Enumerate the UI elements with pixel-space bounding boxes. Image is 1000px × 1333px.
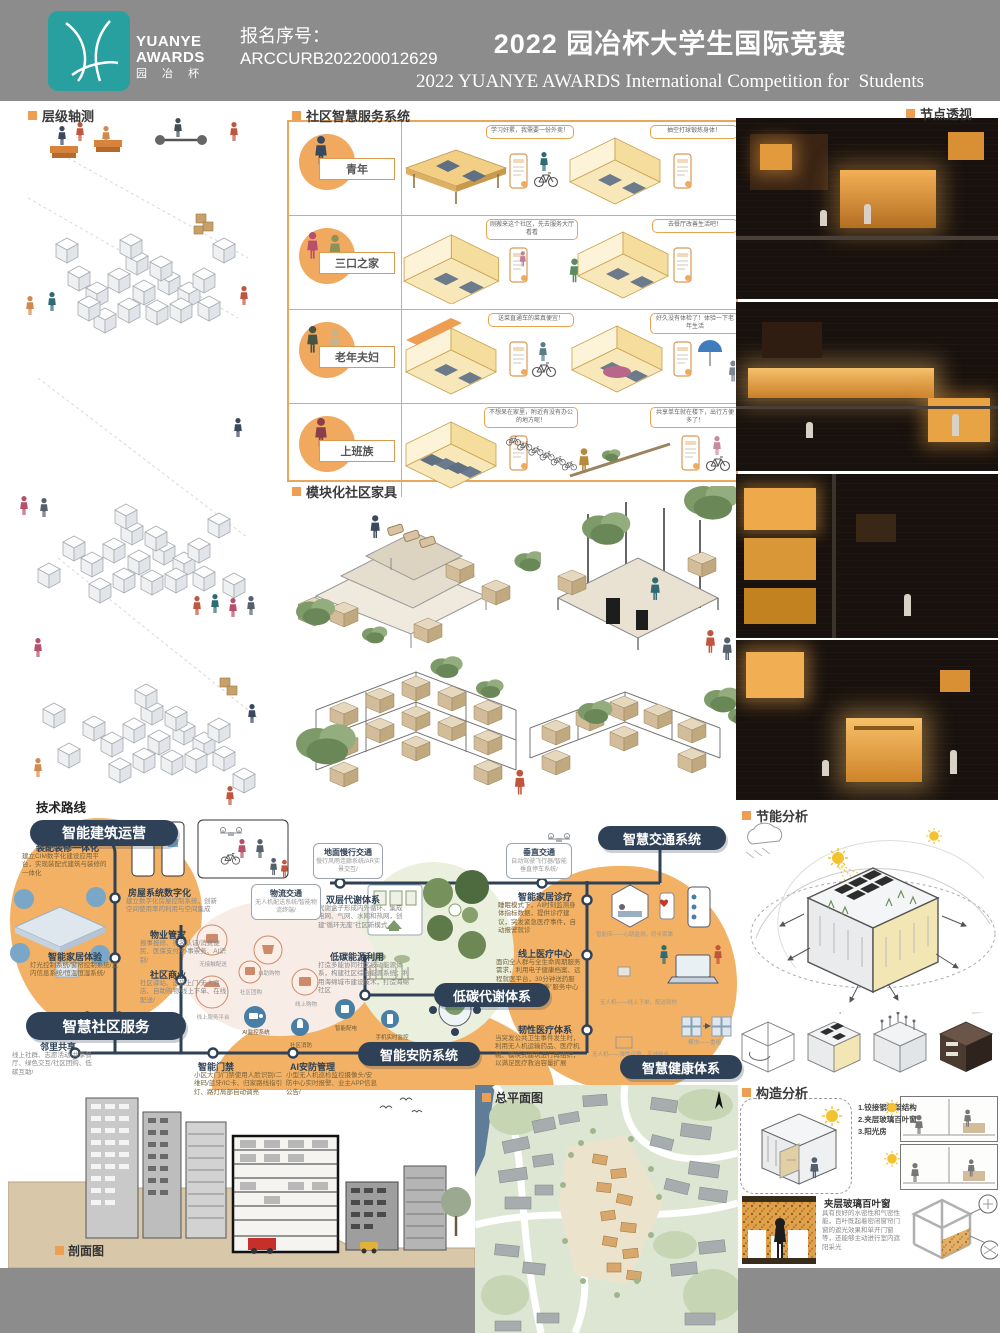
service-row-family-scenes: 刚搬来这个社区，先去服务大厅看看 去餐厅改善生活吧！	[402, 216, 736, 309]
axon-cluster-1	[56, 234, 235, 333]
tower-3	[186, 1122, 226, 1238]
logo-line1: YUANYE	[136, 34, 205, 50]
box-logistics-desc: 无人机配送系统/智能物流终端/	[254, 900, 318, 916]
security-caption-1: AI监控系统	[236, 1030, 276, 1037]
yellow-car	[360, 1242, 378, 1250]
caption-module-recombine: 模块——重组	[688, 1040, 734, 1047]
poster-title-cn: 2022 园冶杯大学生国际竞赛	[360, 22, 980, 61]
pill-smart-health: 智慧健康体系	[620, 1055, 742, 1079]
service-row-elderly-scenes: 送菜直通车的菜真便宜！ 好久没有体检了！体验一下老年生活	[402, 310, 736, 403]
pill-smart-security: 智能安防系统	[358, 1042, 480, 1066]
night-render-3	[736, 474, 998, 638]
frame-cube-detail	[908, 1192, 998, 1268]
speech-bubble: 刚搬来这个社区，先去服务大厅看看	[486, 219, 578, 240]
night-render-2	[736, 302, 998, 471]
umbrella	[698, 340, 722, 352]
service-row-workers-scenes: 不想呆在家里，附近有没有办公的地方呢！ 共享单车就在楼下，出行方便多了！	[402, 404, 736, 497]
node-desc-homemed: 睡眠模式下，AI时刻监测身体指标数据，提供诊疗建议，突发紧急医疗事件，自动报警就…	[498, 902, 582, 936]
speech-bubble: 抽空打球锻炼身体！	[650, 125, 738, 139]
node-view-section-title: 节点透视	[906, 104, 972, 123]
speaker	[636, 610, 648, 630]
speech-bubble: 去餐厅改善生活吧！	[652, 219, 738, 233]
mini-cube-frame	[742, 1022, 794, 1072]
master-plan-label: 总平面图	[482, 1089, 543, 1106]
sun-icon	[822, 1106, 842, 1126]
orange-square-icon	[906, 109, 915, 118]
node-desc-lowcarbon: 打造多能协同社区被动能源体系，构建社区综合能源系统；利用海绵城市建设技术，打造海…	[318, 962, 410, 996]
furniture-planter-rack-tall	[296, 650, 538, 802]
energy-title-text: 节能分析	[756, 806, 808, 825]
construction-section-title: 构造分析	[742, 1083, 808, 1102]
service-row-youth-head: 青年	[289, 122, 402, 215]
box-slow-desc: 慢行风雨连廊系统/AR实景交互/	[316, 859, 380, 875]
axon-cluster-2	[38, 504, 245, 603]
speech-bubble: 共享单车就在楼下，出行方便多了！	[650, 407, 740, 428]
tech-route-title: 技术路线	[36, 797, 86, 816]
caption-smart-bed: 智能床——心跳监测，同步家属	[596, 932, 676, 939]
bike-racks	[506, 437, 670, 476]
tower-2	[143, 1112, 181, 1238]
orange-square-icon	[292, 487, 301, 496]
sun-icon	[926, 828, 942, 844]
orange-square-icon	[55, 1246, 64, 1255]
box-slow-title: 地面慢行交通	[316, 847, 380, 858]
speech-bubble: 不想呆在家里，附近有没有办公的地方呢！	[484, 407, 578, 428]
planter-rows	[542, 696, 706, 775]
orange-square-icon	[742, 811, 751, 820]
orange-square-icon	[292, 111, 301, 120]
service-section-title: 社区智慧服务系统	[292, 106, 410, 125]
mini-cube-solar	[808, 1012, 860, 1072]
node-desc-door: 小区大门/门禁使用人脸识别/二维码/蓝牙/IC卡、归家路线指引灯、路灯局部自动调…	[194, 1072, 286, 1097]
persona-label: 上班族	[319, 440, 395, 462]
node-desc-aisec: 小型无人机巡检监控摄像头/安防中心实时报警、业主APP信息公告/	[286, 1072, 378, 1097]
persona-label: 青年	[319, 158, 395, 180]
service-row-family-head: 三口之家	[289, 216, 402, 309]
energy-diagram	[738, 816, 998, 1012]
node-desc-resilient: 当突发公共卫生事件发生时，利用无人机运输药品、医疗机械、模块式建筑进行再组织，以…	[495, 1035, 581, 1069]
service-row-youth-scenes: 学习好累，我需要一份外卖！ 抽空打球锻炼身体！	[402, 122, 736, 215]
tower-5	[404, 1166, 446, 1250]
pill-smart-building: 智能建筑运营	[30, 820, 178, 846]
barbell-illustration	[155, 135, 207, 145]
node-view-title-text: 节点透视	[920, 104, 972, 123]
furniture-grandstand	[296, 496, 541, 658]
construction-note-3: 3.阳光房	[858, 1126, 887, 1137]
node-desc-metabolism: 代谢盒子形成内外循环、集成电网、气网、水网和热网，创建“循环无废”社区新模式	[318, 905, 408, 930]
service-row-elderly-head: 老年夫妇	[289, 310, 402, 403]
node-desc-housing: 建立数字化房屋控制系统，创新空间使用率的利用与空间集成	[126, 898, 218, 915]
speech-bubble: 好久没有体检了！体验一下老年生活	[650, 313, 740, 334]
circle-caption-4: 社区团购	[230, 990, 272, 997]
season-sun-icons	[884, 1098, 900, 1194]
node-desc-assembly: 建立CIM数字化建设应用平台，实现装配式建筑与装修的一体化	[22, 853, 110, 878]
box-slow-traffic: 地面慢行交通慢行风雨连廊系统/AR实景交互/	[313, 843, 383, 879]
night-render-4	[736, 640, 998, 800]
furniture-section-title: 模块化社区家具	[292, 482, 397, 501]
winter-section-diagram	[900, 1144, 998, 1190]
furniture-stage	[540, 486, 738, 662]
mini-cube-dark	[940, 1012, 992, 1072]
logo-glyph-icon	[48, 11, 130, 91]
node-desc-commerce: 社区驿站、送货上门/无人商店、自助购物/线上下单、在线配送/	[140, 980, 228, 1005]
birds	[380, 1098, 422, 1112]
box-vertical-title: 垂直交通	[509, 847, 569, 858]
security-caption-2: 社区消防	[282, 1043, 320, 1050]
header-titles: 2022 园冶杯大学生国际竞赛 2022 YUANYE AWARDS Inter…	[360, 0, 980, 101]
circle-caption-3: 线上服务平台	[188, 1015, 238, 1022]
orange-square-icon	[742, 1088, 751, 1097]
tower-4	[346, 1182, 398, 1250]
node-desc-smarthome: 灯光控制系统/窗帘控制系统/室内信息系统/恒温恒湿系统/	[30, 962, 122, 979]
night-render-1	[736, 118, 998, 299]
axon-section-title: 层级轴测	[28, 106, 94, 125]
yuanye-logo	[48, 11, 130, 91]
caption-drone-delivery: 无人机——线上下单、配送到村	[600, 1000, 696, 1007]
service-row-elderly: 老年夫妇 送菜直通车的菜真便宜！ 好久没有体检了！体验一下老年生活	[289, 309, 736, 403]
orange-square-icon	[28, 111, 37, 120]
persona-label: 老年夫妇	[319, 346, 395, 368]
security-caption-3: 智能配电	[327, 1026, 365, 1033]
energy-mini-cubes	[736, 1012, 998, 1078]
persona-label: 三口之家	[319, 252, 395, 274]
tree	[441, 1187, 471, 1217]
service-title-text: 社区智慧服务系统	[306, 106, 410, 125]
community-smart-service-table: 青年 学习好累，我需要一份外卖！ 抽空打球锻炼身体！ 三口之家 刚搬来这个社区，…	[287, 120, 738, 482]
red-truck	[248, 1238, 276, 1250]
section-drawing-text: 剖面图	[68, 1242, 104, 1259]
energy-section-title: 节能分析	[742, 806, 808, 825]
box-logistics-title: 物流交通	[254, 888, 318, 899]
smart-bed-diagram	[612, 885, 710, 927]
axon-cluster-3	[43, 684, 255, 793]
circle-caption-2: 自助购物	[248, 971, 290, 978]
energy-cube	[808, 868, 938, 992]
construction-cube	[744, 1100, 854, 1192]
pill-smart-community: 智慧社区服务	[26, 1012, 186, 1040]
louver-window-photo	[742, 1196, 816, 1264]
node-desc-share: 线上社群、志愿活动/共享餐厅、绿色交互/社区团购、低碳互助/	[12, 1052, 98, 1077]
box-logistics: 物流交通无人机配送系统/智能物流终端/	[251, 884, 321, 920]
box-vertical-desc: 自动驾驶飞行器/智能垂直停车系统/	[509, 859, 569, 875]
service-row-family: 三口之家 刚搬来这个社区，先去服务大厅看看 去餐厅改善生活吧！	[289, 215, 736, 309]
cloud-icon	[748, 823, 782, 844]
logo-line3: 园 冶 杯	[136, 69, 205, 81]
furniture-planter-rack-low	[512, 658, 738, 798]
louver-window-name: 夹层玻璃百叶窗	[824, 1196, 891, 1210]
round-display	[603, 366, 631, 378]
circle-caption-1: 无接触配送	[190, 962, 236, 969]
service-row-youth: 青年 学习好累，我需要一份外卖！ 抽空打球锻炼身体！	[289, 122, 736, 215]
master-plan-map	[475, 1085, 738, 1333]
section-drawing-label: 剖面图	[55, 1242, 104, 1259]
master-plan-text: 总平面图	[495, 1089, 543, 1106]
logo-wordmark: YUANYE AWARDS 园 冶 杯	[136, 34, 205, 80]
speech-bubble: 送菜直通车的菜真便宜！	[488, 313, 574, 327]
construction-title-text: 构造分析	[756, 1083, 808, 1102]
competition-poster: YUANYE AWARDS 园 冶 杯 报名序号： ARCCURB2022000…	[0, 0, 1000, 1333]
pill-low-carbon: 低碳代谢体系	[434, 983, 550, 1007]
axon-title-text: 层级轴测	[42, 106, 94, 125]
poster-title-en: 2022 YUANYE AWARDS International Competi…	[360, 71, 980, 93]
circle-caption-5: 线上购物	[285, 1002, 327, 1009]
mini-cube-rain	[874, 1012, 926, 1072]
louver-window-desc: 具有良好的水密性和气密性能，百叶既起着密闭窗帘门窗的遮光效果和单开门窗等，还能够…	[822, 1210, 906, 1252]
speaker	[606, 598, 620, 624]
axonometric-clusters	[8, 118, 285, 818]
header-bar: YUANYE AWARDS 园 冶 杯 报名序号： ARCCURB2022000…	[0, 0, 1000, 101]
section-cut-building	[233, 1136, 338, 1254]
furniture-title-text: 模块化社区家具	[306, 482, 397, 501]
tower-1	[86, 1098, 138, 1238]
speech-bubble: 学习好累，我需要一份外卖！	[486, 125, 574, 139]
drone-icon	[548, 834, 570, 843]
pill-smart-traffic: 智慧交通系统	[598, 826, 726, 850]
logo-line2: AWARDS	[136, 50, 205, 66]
box-vertical-traffic: 垂直交通自动驾驶飞行器/智能垂直停车系统/	[506, 843, 572, 879]
orange-square-icon	[482, 1093, 491, 1102]
